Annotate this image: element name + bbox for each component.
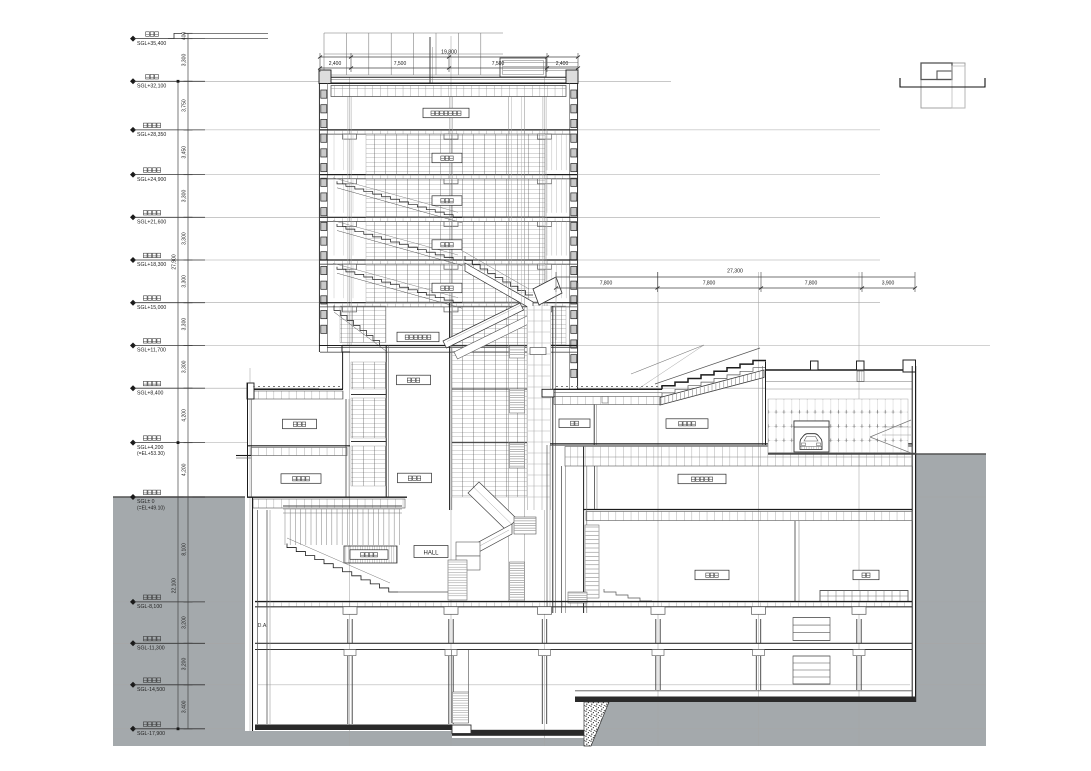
svg-text:SGL+28,350: SGL+28,350 xyxy=(137,132,166,138)
svg-text:3,300: 3,300 xyxy=(182,318,188,331)
svg-text:3,750: 3,750 xyxy=(182,99,188,112)
svg-text:3,300: 3,300 xyxy=(182,190,188,203)
svg-text:(=EL+49.10): (=EL+49.10) xyxy=(137,505,165,511)
svg-text:SGL± 0: SGL± 0 xyxy=(137,499,155,505)
svg-text:SGL-11,300: SGL-11,300 xyxy=(137,646,165,652)
svg-text:D.A: D.A xyxy=(258,623,267,629)
svg-text:27,900: 27,900 xyxy=(172,254,178,270)
svg-text:3,900: 3,900 xyxy=(882,281,895,287)
svg-text:8,100: 8,100 xyxy=(182,543,188,556)
svg-text:SGL+8,400: SGL+8,400 xyxy=(137,390,164,396)
svg-text:3,300: 3,300 xyxy=(182,360,188,373)
svg-text:SGL+11,700: SGL+11,700 xyxy=(137,348,166,354)
svg-text:3,300: 3,300 xyxy=(182,275,188,288)
svg-text:27,300: 27,300 xyxy=(727,269,743,275)
svg-text:2,400: 2,400 xyxy=(329,61,342,67)
svg-text:3,200: 3,200 xyxy=(182,616,188,629)
svg-text:3,200: 3,200 xyxy=(182,658,188,671)
svg-text:SGL+18,300: SGL+18,300 xyxy=(137,262,166,268)
svg-text:3,400: 3,400 xyxy=(182,700,188,713)
svg-text:SGL+4,200: SGL+4,200 xyxy=(137,445,164,451)
svg-text:SGL+21,600: SGL+21,600 xyxy=(137,220,166,226)
svg-text:SGL+35,400: SGL+35,400 xyxy=(137,41,166,47)
svg-text:SGL-14,500: SGL-14,500 xyxy=(137,687,165,693)
svg-text:4,200: 4,200 xyxy=(182,409,188,422)
svg-text:HALL: HALL xyxy=(423,551,439,557)
svg-text:SGL-8,100: SGL-8,100 xyxy=(137,604,162,610)
svg-text:7,800: 7,800 xyxy=(703,281,716,287)
svg-text:7,800: 7,800 xyxy=(805,281,818,287)
svg-text:2,400: 2,400 xyxy=(556,61,569,67)
svg-text:7,500: 7,500 xyxy=(492,61,505,67)
svg-text:4,200: 4,200 xyxy=(182,463,188,476)
svg-text:3,300: 3,300 xyxy=(182,232,188,245)
svg-text:SGL+32,100: SGL+32,100 xyxy=(137,84,166,90)
svg-text:3,300: 3,300 xyxy=(182,54,188,67)
svg-text:SGL-17,900: SGL-17,900 xyxy=(137,731,165,737)
svg-text:22,100: 22,100 xyxy=(172,578,178,594)
svg-text:SGL+24,900: SGL+24,900 xyxy=(137,177,166,183)
svg-text:SGL+15,000: SGL+15,000 xyxy=(137,305,166,311)
svg-text:400: 400 xyxy=(182,32,188,41)
svg-text:(=EL+53.30): (=EL+53.30) xyxy=(137,451,165,457)
svg-text:7,500: 7,500 xyxy=(394,61,407,67)
svg-text:7,800: 7,800 xyxy=(600,281,613,287)
svg-text:3,450: 3,450 xyxy=(182,146,188,159)
